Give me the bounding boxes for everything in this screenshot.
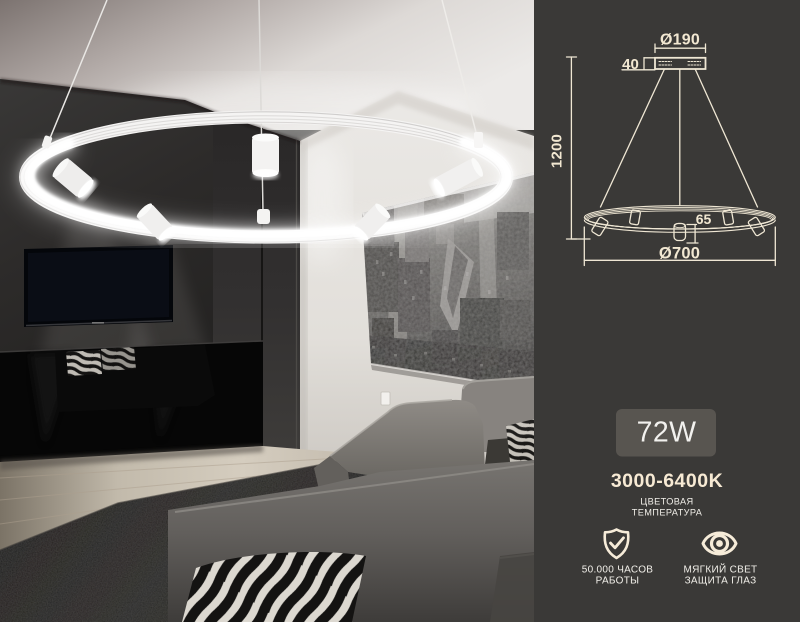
svg-text:Ø190: Ø190 <box>660 32 700 49</box>
svg-text:МЯГКИЙ СВЕТ: МЯГКИЙ СВЕТ <box>684 563 758 576</box>
svg-text:72W: 72W <box>637 417 697 449</box>
svg-text:РАБОТЫ: РАБОТЫ <box>596 576 640 587</box>
svg-text:40: 40 <box>622 56 639 73</box>
svg-text:ЦВЕТОВАЯ: ЦВЕТОВАЯ <box>640 497 693 507</box>
svg-text:3000-6400K: 3000-6400K <box>611 470 723 492</box>
svg-text:ТЕМПЕРАТУРА: ТЕМПЕРАТУРА <box>632 508 703 518</box>
svg-text:ЗАЩИТА ГЛАЗ: ЗАЩИТА ГЛАЗ <box>685 576 757 587</box>
svg-text:50.000 ЧАСОВ: 50.000 ЧАСОВ <box>582 565 654 576</box>
svg-text:65: 65 <box>696 211 712 227</box>
svg-text:Ø700: Ø700 <box>659 245 700 263</box>
svg-text:1200: 1200 <box>549 134 566 168</box>
